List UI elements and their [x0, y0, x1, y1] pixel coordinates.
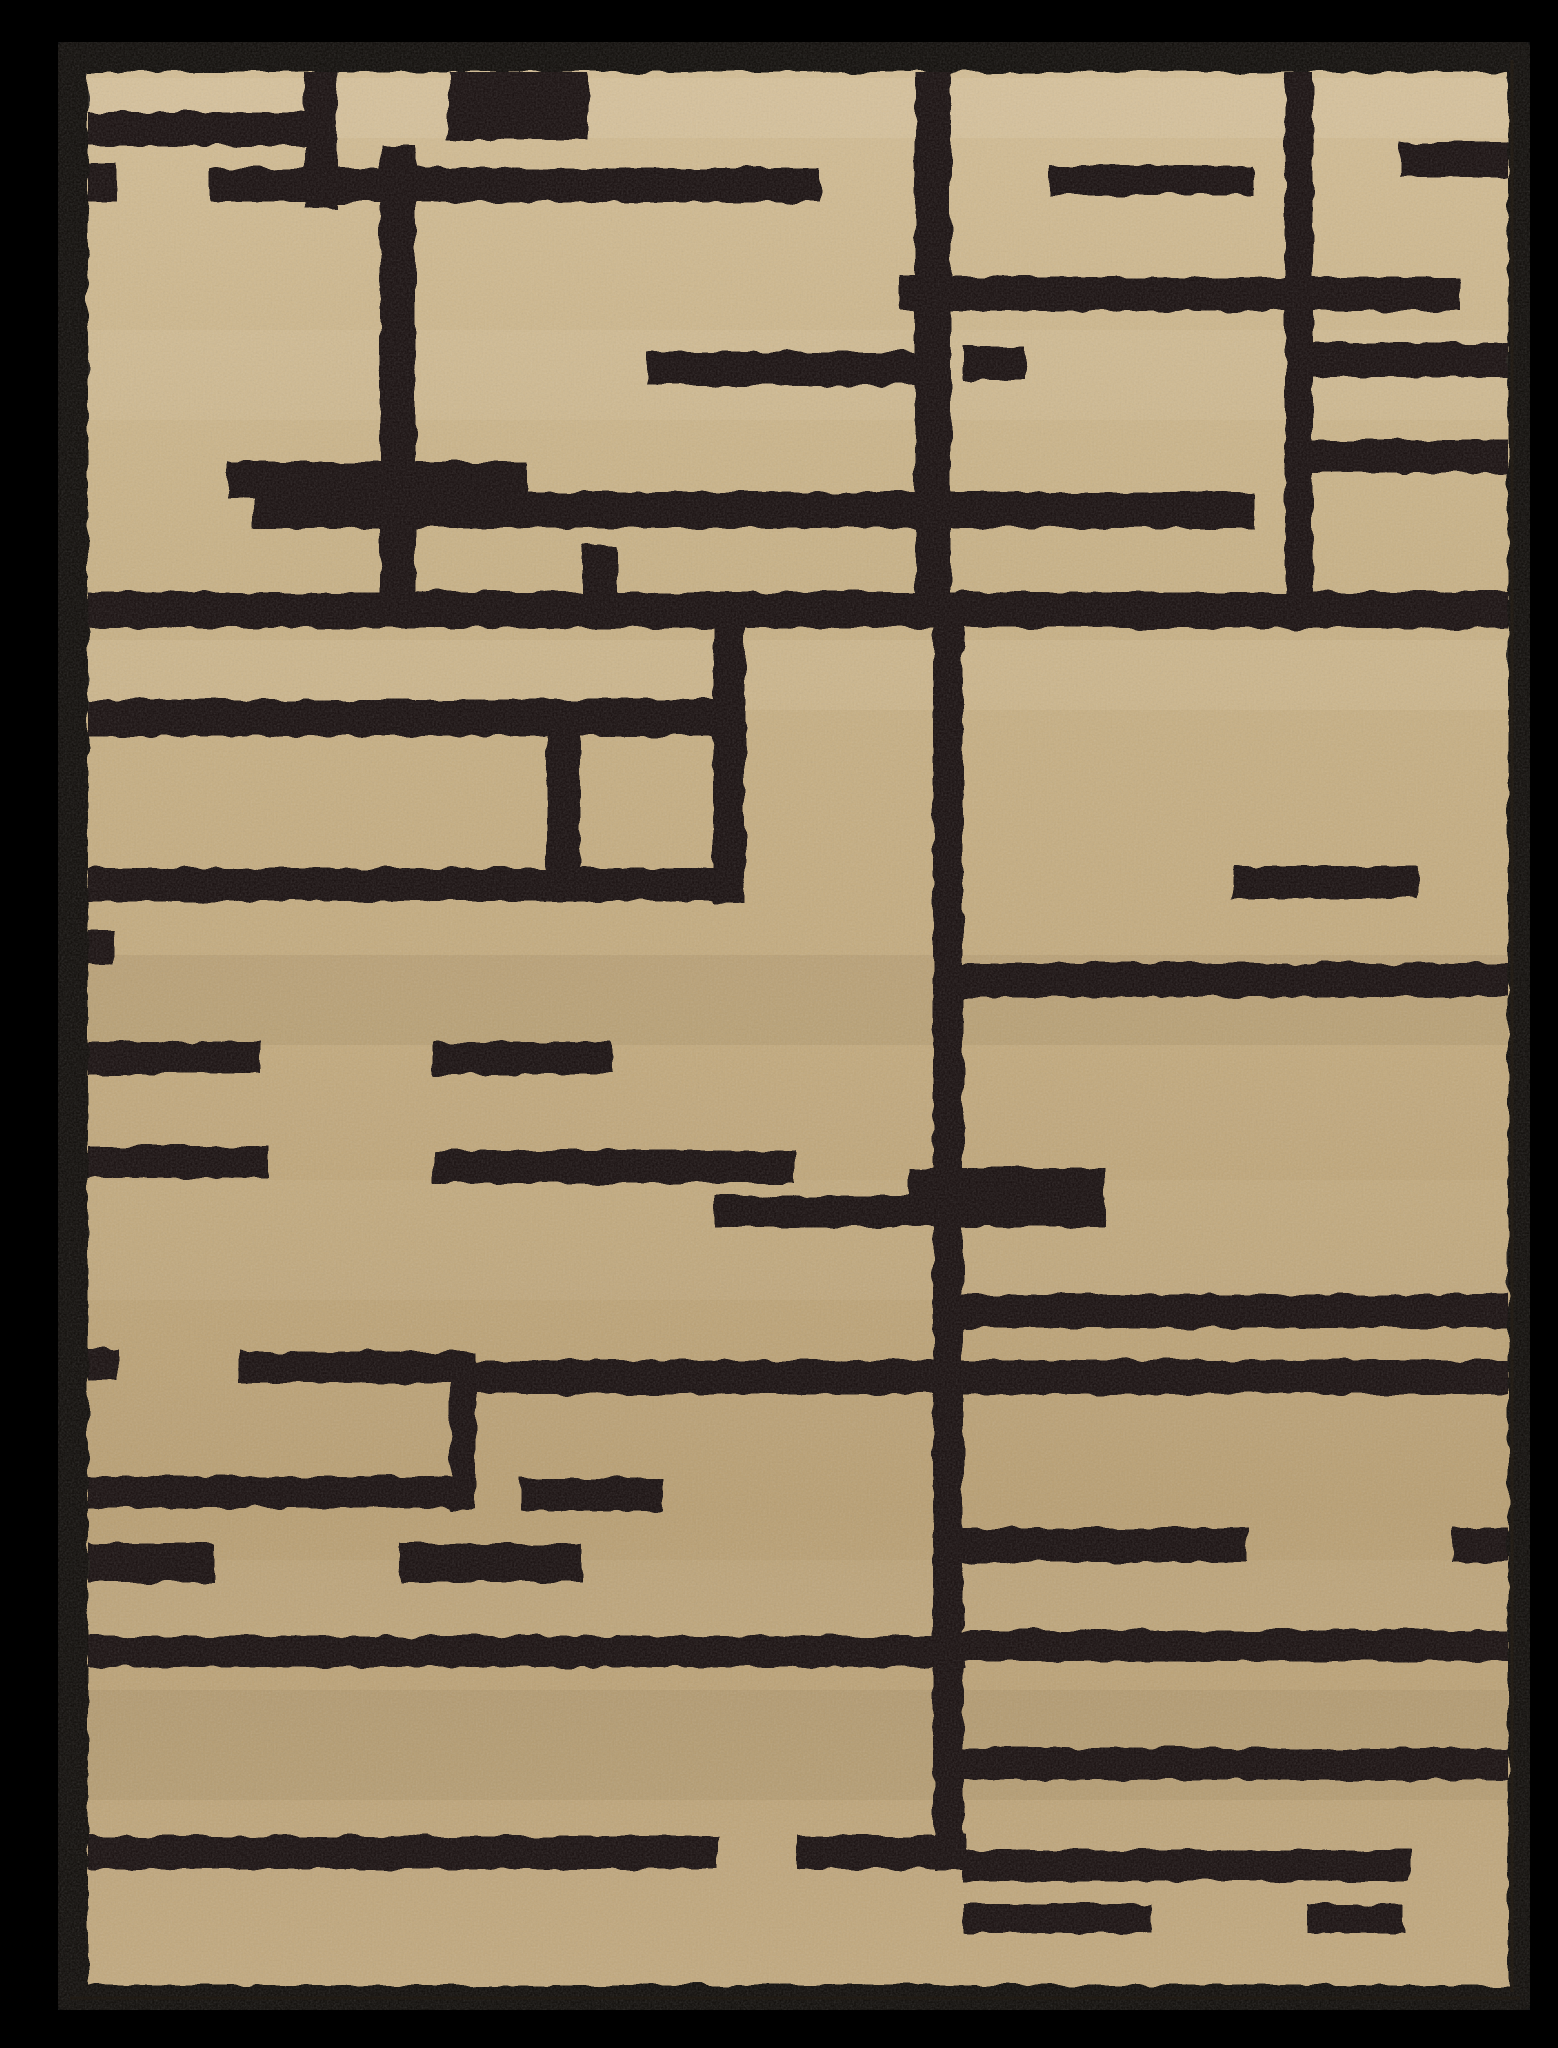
rug-photo — [0, 0, 1558, 2048]
rug — [58, 42, 1530, 2010]
carpet-grain-texture — [58, 42, 1530, 2010]
screenshot-canvas — [0, 0, 1558, 2048]
rug-scene-svg — [0, 0, 1558, 2048]
